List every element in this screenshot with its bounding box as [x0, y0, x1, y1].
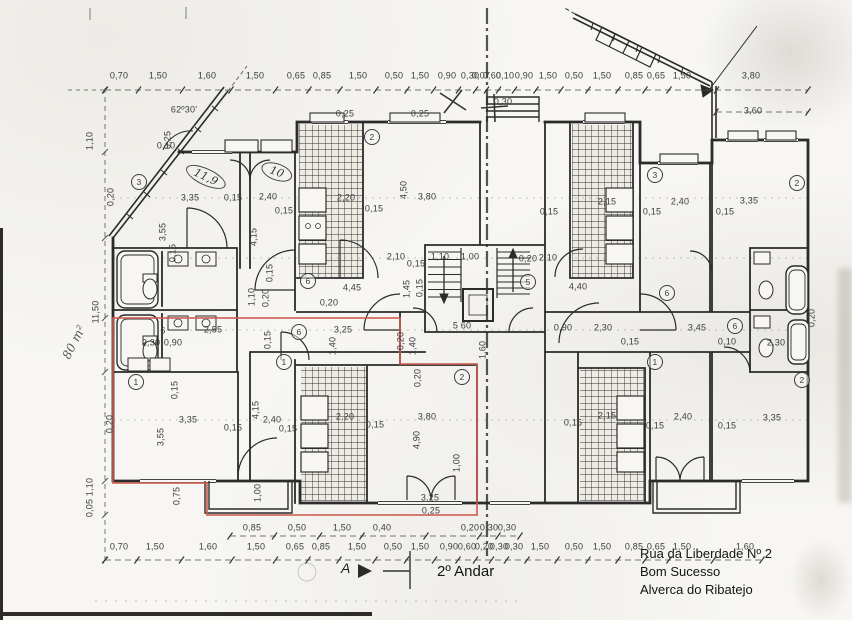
scan-edge-bottom — [0, 612, 372, 616]
address-locality: Bom Sucesso — [640, 563, 772, 581]
section-marker-label: A — [341, 560, 350, 576]
address-town: Alverca do Ribatejo — [640, 581, 772, 599]
floor-title: 2º Andar — [437, 563, 494, 580]
floorplan-page: 3,350,152,400,153,554,150,150,151,100,20… — [0, 0, 852, 620]
dimension-chains — [0, 0, 852, 620]
scan-edge-left — [0, 228, 3, 620]
address-street: Rua da Liberdade Nº 2 — [640, 545, 772, 563]
address-block: Rua da Liberdade Nº 2 Bom Sucesso Alverc… — [640, 545, 772, 599]
